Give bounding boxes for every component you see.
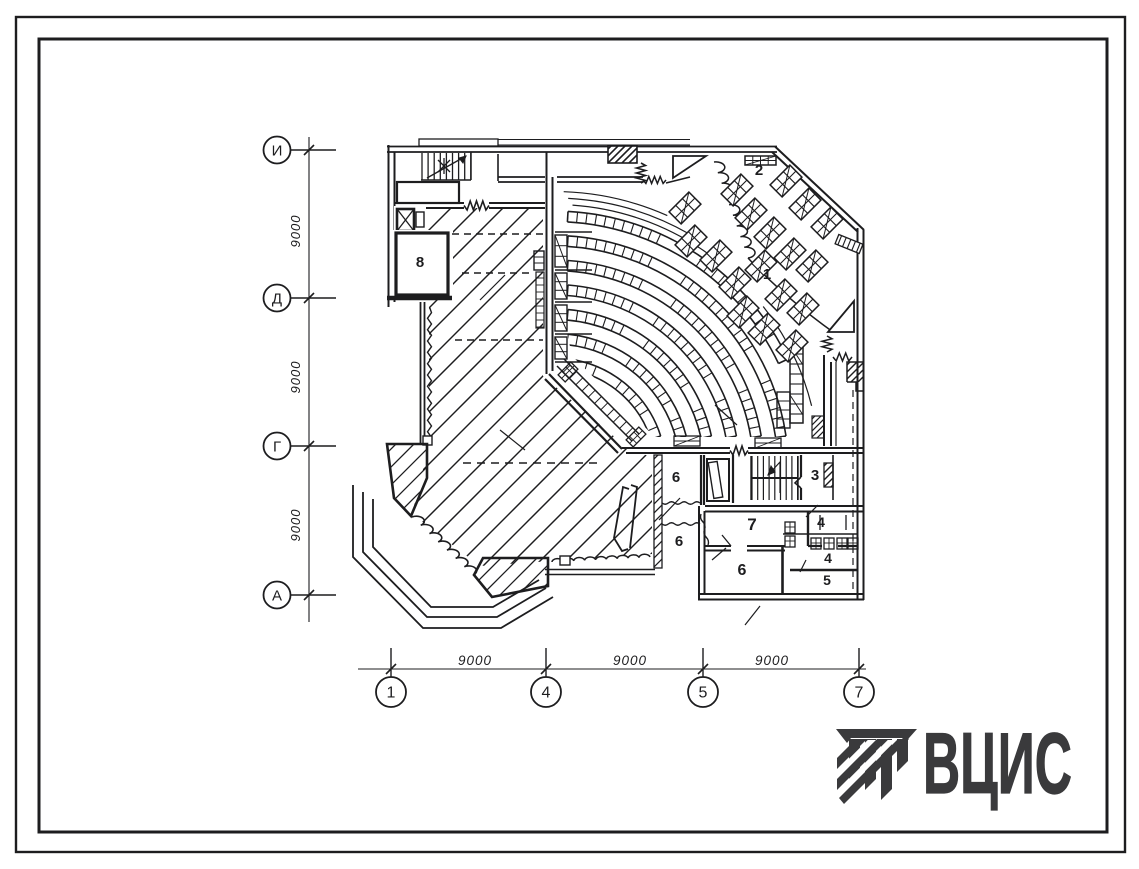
svg-text:6: 6 xyxy=(738,562,747,579)
svg-text:2: 2 xyxy=(755,162,763,179)
svg-text:4: 4 xyxy=(542,685,551,702)
svg-text:7: 7 xyxy=(855,685,864,702)
svg-text:1: 1 xyxy=(387,685,396,702)
svg-text:Г: Г xyxy=(273,439,281,456)
svg-text:6: 6 xyxy=(675,533,683,550)
svg-text:9000: 9000 xyxy=(288,215,303,248)
svg-text:3: 3 xyxy=(811,467,819,484)
svg-text:9000: 9000 xyxy=(288,361,303,394)
svg-text:9000: 9000 xyxy=(755,653,789,668)
svg-text:5: 5 xyxy=(823,572,831,588)
svg-text:1: 1 xyxy=(763,266,771,283)
svg-text:7: 7 xyxy=(747,515,756,534)
svg-text:А: А xyxy=(272,588,282,605)
svg-text:9000: 9000 xyxy=(613,653,647,668)
svg-text:Д: Д xyxy=(272,291,282,308)
svg-text:6: 6 xyxy=(672,469,680,486)
svg-text:5: 5 xyxy=(699,685,708,702)
svg-text:9000: 9000 xyxy=(288,509,303,542)
svg-text:9000: 9000 xyxy=(458,653,492,668)
svg-text:ВЦИС: ВЦИС xyxy=(923,716,1072,812)
svg-text:И: И xyxy=(272,143,283,160)
svg-text:4: 4 xyxy=(817,514,825,530)
svg-text:4: 4 xyxy=(824,550,832,566)
svg-text:8: 8 xyxy=(416,254,424,271)
